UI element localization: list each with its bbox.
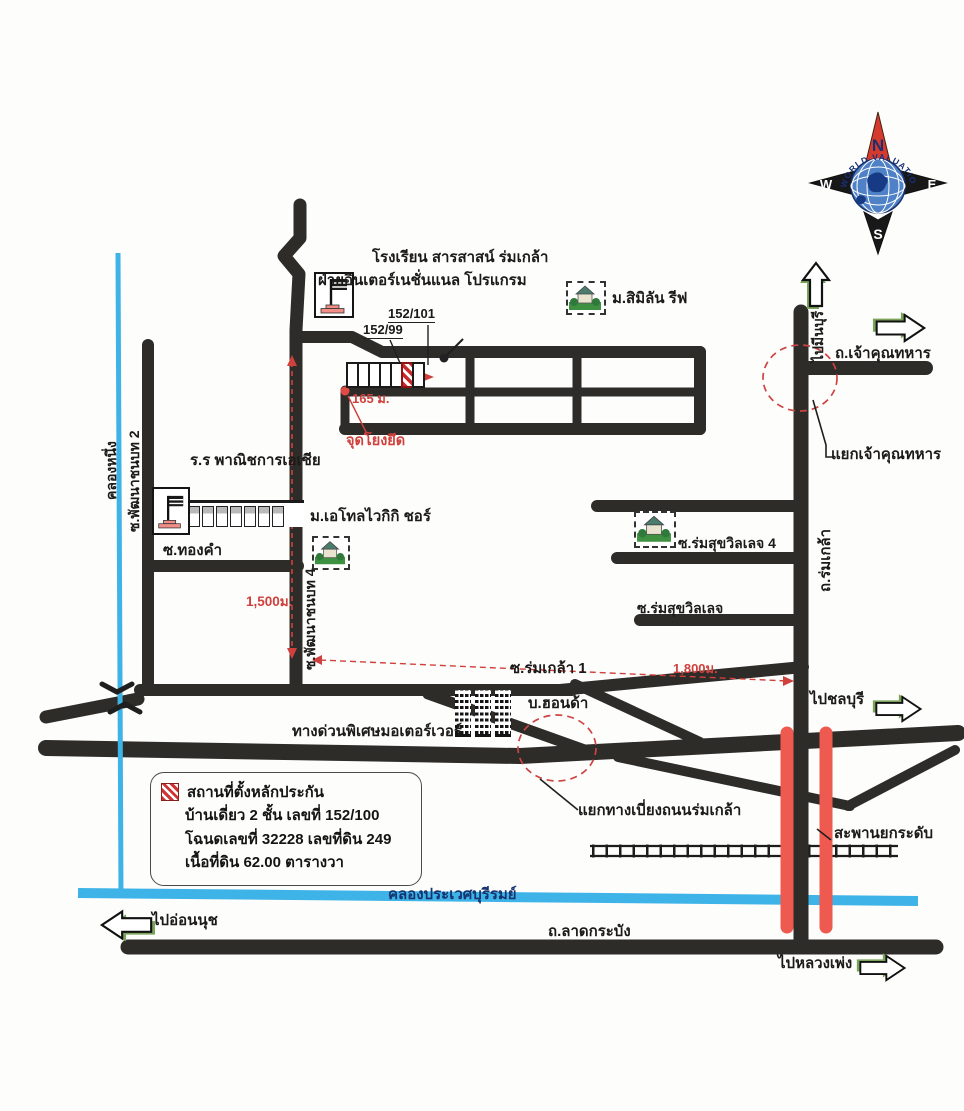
legend-box: สถานที่ตั้งหลักประกัน บ้านเดี่ยว 2 ชั้น … [150,772,422,886]
arrowhead-right-165-icon [424,373,434,381]
office-building-icon [455,690,511,737]
legend-deed-line: โฉนดเลขที่ 32228 เลขที่ดิน 249 [185,828,411,851]
rowhouse-unit [412,362,425,388]
label-to-chonburi: ไปชลบุรี [810,692,864,709]
property-location-map: N W E S WORLD VALUATION [0,0,964,1111]
label-soi-romsuk4: ซ.ร่มสุขวิลเลจ 4 [678,536,776,551]
legend-area-line: เนื้อที่ดิน 62.00 ตารางวา [185,851,411,874]
label-canal-prawet: คลองประเวศบุรีรมย์ [388,887,517,904]
label-address-152-101: 152/101 [388,307,435,323]
compass-s-label: S [873,226,882,242]
school-flag-icon [152,487,190,535]
label-elevated-bridge: สะพานยกระดับ [834,826,933,843]
label-road-romklao: ถ.ร่มเกล้า [813,529,837,592]
road-block-top [296,337,700,352]
label-soi-thongkham: ซ.ทองคำ [163,543,222,560]
pole-dot-icon [440,354,449,363]
railway-track-icon [590,846,898,856]
label-distance-1800m: 1,800ม. [673,662,718,676]
legend-house-line: บ้านเดี่ยว 2 ชั้น เลขที่ 152/100 [185,804,411,827]
label-anchor-point: จุดโยงยึด [346,434,405,450]
compass-rose-icon: N W E S WORLD VALUATION [806,106,952,260]
label-junction-bypass: แยกทางเบี่ยงถนนร่มเกล้า [578,803,741,820]
arrow-right-to-luangphaeng-icon [856,950,908,986]
label-village-similan: ม.สิมิลัน รีฟ [612,291,687,308]
arrow-up-to-minburi-icon [799,260,833,310]
village-house-icon [634,511,676,548]
arrow-left-to-onnut-icon [98,906,156,944]
road-ramp-east [848,750,955,806]
village-house-icon [566,281,606,315]
merge-chevron-icon [102,684,132,692]
arrow-right-chaokhun-icon [872,310,928,346]
arrow-right-to-chonburi-icon [872,692,924,726]
canal-left-line [118,253,121,897]
label-canal-left: คลองหนึ่ง [101,441,123,500]
label-distance-165m: 165 ม. [352,392,389,406]
road-ramp-cross [575,684,700,742]
legend-title: สถานที่ตั้งหลักประกัน [187,781,324,804]
label-to-onnut: ไปอ่อนนุช [152,913,218,930]
label-soi-pattana4: ซ.พัฒนาชนบท 4 [300,568,322,670]
label-school-sarasas-line1: โรงเรียน สารสาสน์ ร่มเกล้า [372,250,548,267]
label-road-chaokhun: ถ.เจ้าคุณทหาร [835,346,931,363]
compass-w-label: W [820,177,833,192]
label-school-asia: ร.ร พาณิชการเอเชีย [190,453,321,470]
label-soi-pattana2: ซ.พัฒนาชนบท 2 [124,430,146,532]
label-distance-1500m: 1,500ม. [246,595,292,610]
road-ramp-southeast [618,757,850,806]
label-road-latkrabang: ถ.ลาดกระบัง [548,924,631,941]
label-junction-chaokhun: แยกเจ้าคุณทหาร [831,447,941,464]
label-village-atoll: ม.เอโทลไวกิกิ ชอร์ [310,509,431,526]
label-soi-romsuk: ซ.ร่มสุขวิลเลจ [637,601,723,616]
rowhouse-strip [348,362,425,388]
leader-yaek-bypass [540,779,578,810]
shophouse-row-icon [188,500,304,527]
label-address-152-99: 152/99 [363,323,403,339]
label-motorway: ทางด่วนพิเศษมอเตอร์เวอร์ [292,724,462,741]
label-to-minburi: ไปมีนบุรี [808,311,830,362]
label-school-sarasas-line2: ฝ่ายอินเตอร์เนชั่นแนล โปรแกรม [318,273,527,290]
subject-property-hatch-icon [161,783,179,801]
label-soi-romklao1: ซ.ร่มเกล้า 1 [510,661,587,678]
village-house-icon [312,536,350,570]
arrowhead-right-icon [783,676,794,686]
label-honda: บ.ฮอนด้า [528,696,588,713]
elevated-bridge-icon [787,695,826,945]
label-to-luangphaeng: ไปหลวงเพ่ง [778,956,852,973]
compass-e-label: E [928,177,937,192]
